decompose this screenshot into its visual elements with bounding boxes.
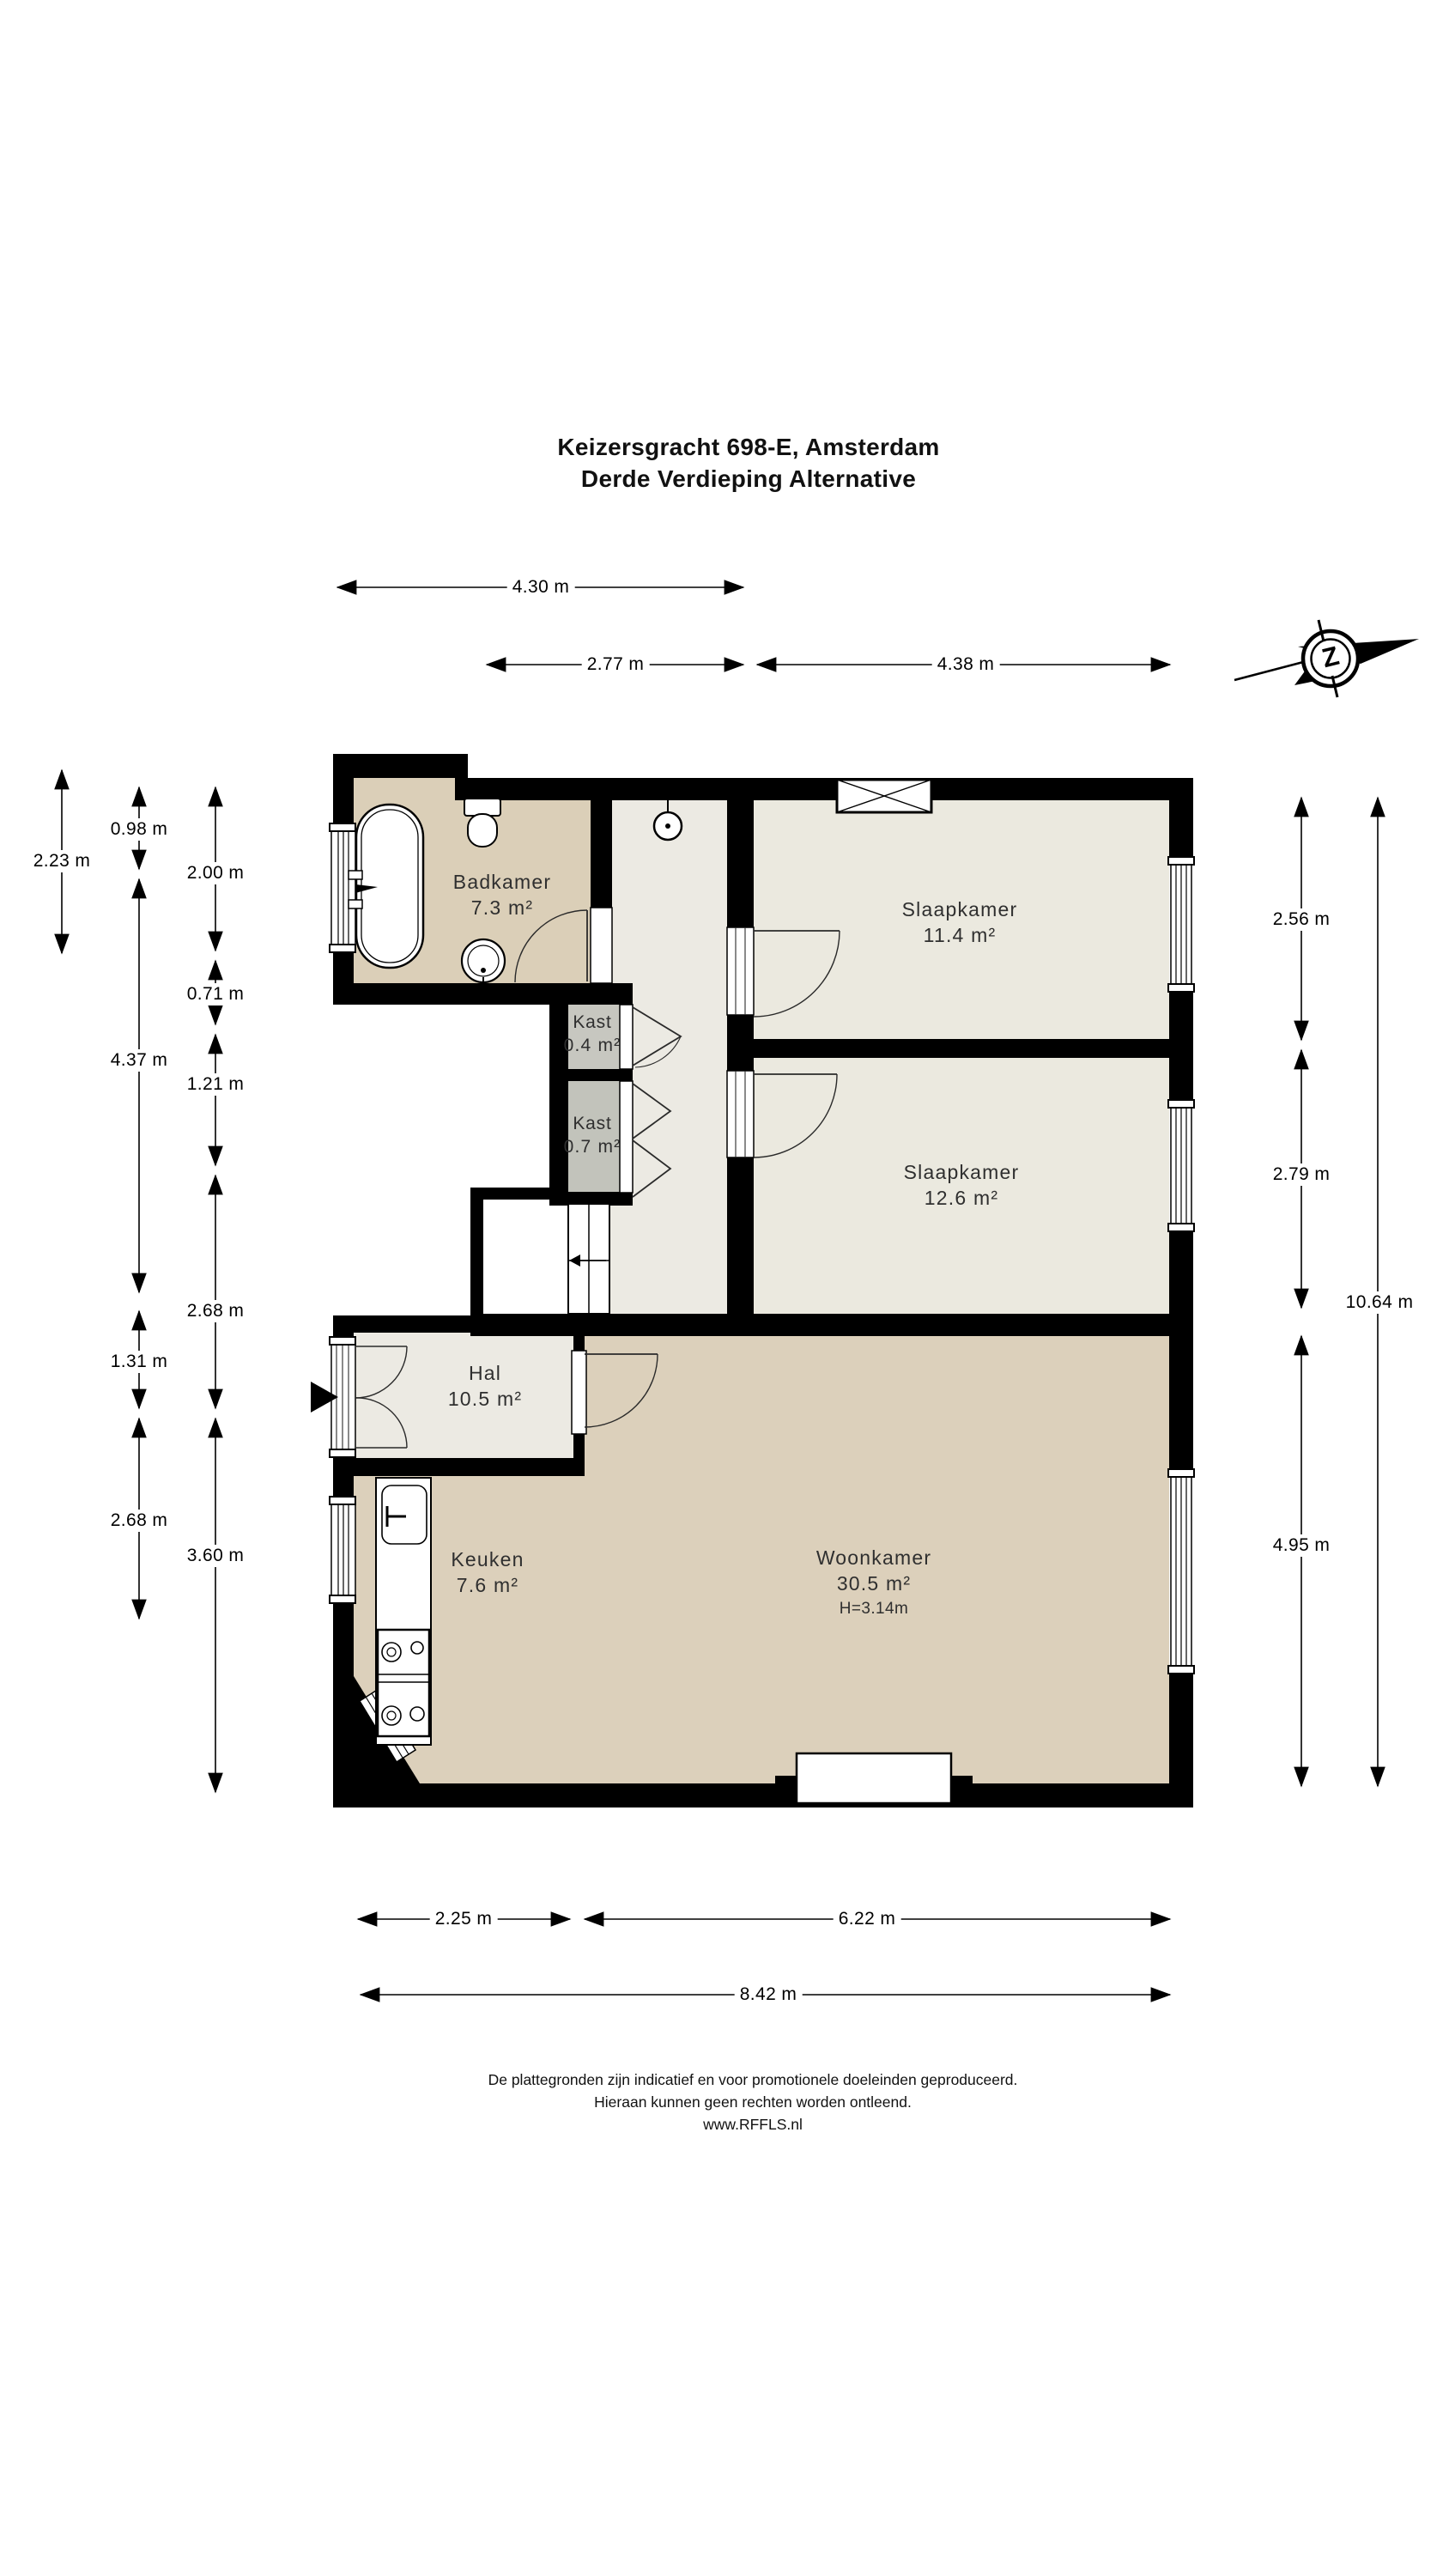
dim-label-left-8: 2.68 m bbox=[106, 1510, 173, 1532]
room-area: 11.4 m² bbox=[902, 922, 1018, 948]
dim-label-top-1: 2.77 m bbox=[582, 653, 650, 676]
dim-label-right-1: 2.79 m bbox=[1268, 1163, 1336, 1186]
footer-disclaimer-line1: De plattegronden zijn indicatief en voor… bbox=[488, 2071, 1018, 2089]
room-ceiling-height: H=3.14m bbox=[816, 1596, 931, 1622]
room-name: Slaapkamer bbox=[904, 1159, 1020, 1185]
dim-label-left-6: 2.68 m bbox=[182, 1300, 250, 1322]
room-label-slaapkamer2: Slaapkamer 12.6 m² bbox=[904, 1159, 1020, 1211]
footer-website: www.RFFLS.nl bbox=[703, 2116, 803, 2134]
dim-label-top-0: 4.30 m bbox=[507, 576, 575, 598]
room-name: Slaapkamer bbox=[902, 896, 1018, 922]
dim-label-bottom-0: 2.25 m bbox=[430, 1908, 498, 1930]
room-area: 0.4 m² bbox=[564, 1034, 621, 1057]
room-area: 30.5 m² bbox=[816, 1571, 931, 1596]
dim-label-right-2: 10.64 m bbox=[1341, 1291, 1419, 1314]
kitchen-sink bbox=[382, 1485, 427, 1544]
room-label-badkamer: Badkamer 7.3 m² bbox=[453, 869, 551, 920]
window-keuken bbox=[330, 1497, 355, 1603]
dim-label-left-2: 2.00 m bbox=[182, 862, 250, 884]
compass-tail-line bbox=[1234, 661, 1307, 680]
room-label-kast2: Kast 0.7 m² bbox=[564, 1112, 621, 1158]
dim-label-right-0: 2.56 m bbox=[1268, 908, 1336, 931]
dim-label-left-5: 1.21 m bbox=[182, 1073, 250, 1096]
room-name: Keuken bbox=[451, 1546, 524, 1572]
dim-label-left-7: 1.31 m bbox=[106, 1351, 173, 1373]
room-area: 7.3 m² bbox=[453, 895, 551, 920]
room-name: Badkamer bbox=[453, 869, 551, 895]
stairs bbox=[568, 1204, 609, 1314]
dim-label-left-9: 3.60 m bbox=[182, 1545, 250, 1567]
room-area: 12.6 m² bbox=[904, 1185, 1020, 1211]
dim-label-bottom-1: 6.22 m bbox=[834, 1908, 901, 1930]
room-label-slaapkamer1: Slaapkamer 11.4 m² bbox=[902, 896, 1018, 948]
room-area: 10.5 m² bbox=[448, 1386, 522, 1412]
page-title-line1: Keizersgracht 698-E, Amsterdam bbox=[557, 434, 939, 461]
vent-box bbox=[837, 780, 931, 812]
footer-disclaimer-line2: Hieraan kunnen geen rechten worden ontle… bbox=[594, 2093, 912, 2111]
page-title-line2: Derde Verdieping Alternative bbox=[581, 465, 916, 493]
window-slaapkamer2 bbox=[1168, 1100, 1194, 1231]
bathtub bbox=[349, 805, 423, 968]
room-area: 7.6 m² bbox=[451, 1572, 524, 1598]
room-name: Hal bbox=[448, 1360, 522, 1386]
french-door bbox=[797, 1753, 951, 1803]
dim-label-top-2: 4.38 m bbox=[932, 653, 1000, 676]
room-name: Kast bbox=[564, 1112, 621, 1135]
room-label-kast1: Kast 0.4 m² bbox=[564, 1011, 621, 1057]
room-label-keuken: Keuken 7.6 m² bbox=[451, 1546, 524, 1598]
window-woonkamer bbox=[1168, 1469, 1194, 1674]
floorplan-drawing bbox=[0, 0, 1449, 2576]
dim-label-left-0: 2.23 m bbox=[28, 850, 96, 872]
window-slaapkamer1 bbox=[1168, 857, 1194, 992]
floorplan-page: Keizersgracht 698-E, Amsterdam Derde Ver… bbox=[0, 0, 1449, 2576]
stove bbox=[378, 1630, 429, 1736]
room-name: Woonkamer bbox=[816, 1545, 931, 1571]
dim-label-bottom-2: 8.42 m bbox=[735, 1984, 803, 2006]
window-badkamer bbox=[330, 823, 355, 952]
room-area: 0.7 m² bbox=[564, 1135, 621, 1158]
dim-label-left-4: 4.37 m bbox=[106, 1049, 173, 1072]
room-name: Kast bbox=[564, 1011, 621, 1034]
room-label-woonkamer: Woonkamer 30.5 m² H=3.14m bbox=[816, 1545, 931, 1622]
dim-label-right-3: 4.95 m bbox=[1268, 1534, 1336, 1557]
toilet bbox=[464, 799, 500, 847]
dim-label-left-3: 0.71 m bbox=[182, 983, 250, 1005]
room-label-hal: Hal 10.5 m² bbox=[448, 1360, 522, 1412]
dim-label-left-1: 0.98 m bbox=[106, 818, 173, 841]
